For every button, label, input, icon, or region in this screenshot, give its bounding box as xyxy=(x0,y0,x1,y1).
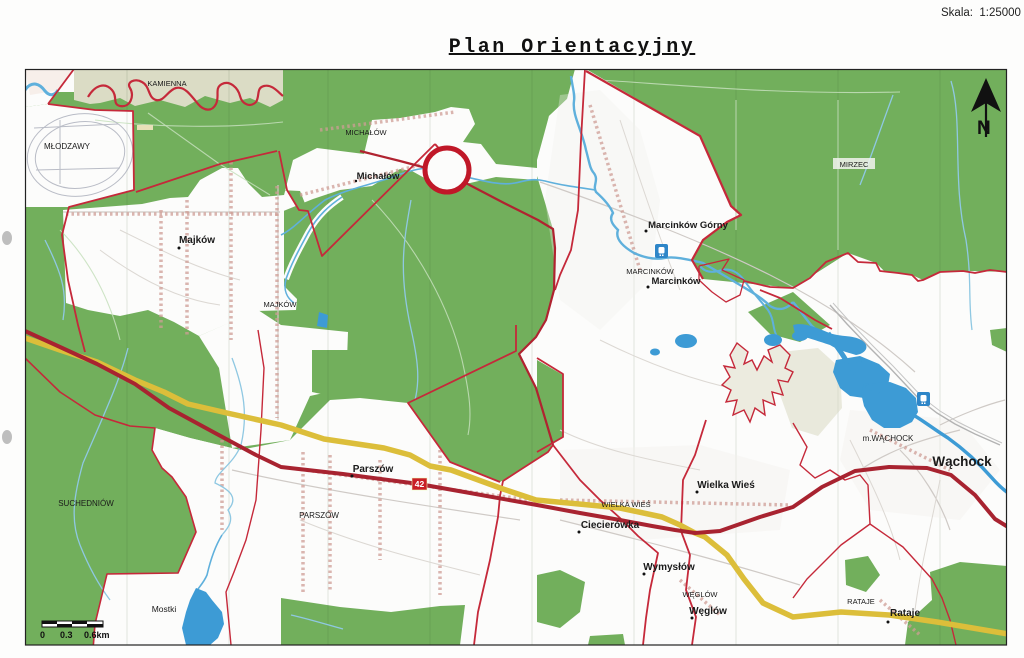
svg-text:N: N xyxy=(977,118,991,139)
svg-text:Majków: Majków xyxy=(179,235,215,246)
svg-text:Węglów: Węglów xyxy=(689,606,727,617)
svg-text:42: 42 xyxy=(415,479,425,489)
svg-text:Wymysłów: Wymysłów xyxy=(643,562,695,573)
svg-text:Marcinków: Marcinków xyxy=(651,276,701,287)
svg-text:PARSZÓW: PARSZÓW xyxy=(299,511,339,520)
svg-text:MARCINKÓW: MARCINKÓW xyxy=(626,267,674,276)
svg-text:KAMIENNA: KAMIENNA xyxy=(147,79,186,88)
svg-text:Marcinków Górny: Marcinków Górny xyxy=(648,220,728,231)
svg-text:MIRZEC: MIRZEC xyxy=(840,160,869,169)
svg-text:Mostki: Mostki xyxy=(152,604,177,614)
svg-text:Rataje: Rataje xyxy=(890,608,920,619)
svg-text:0: 0 xyxy=(40,630,45,640)
svg-text:WIELKA WIEŚ: WIELKA WIEŚ xyxy=(601,500,650,509)
svg-text:Wąchock: Wąchock xyxy=(932,454,992,469)
svg-text:0.6km: 0.6km xyxy=(84,630,110,640)
svg-text:SUCHEDNIÓW: SUCHEDNIÓW xyxy=(58,499,114,508)
svg-text:Parszów: Parszów xyxy=(353,464,394,475)
svg-text:Ciecierówka: Ciecierówka xyxy=(581,520,640,531)
svg-text:Skala: 1:25000: Skala: 1:25000 xyxy=(941,7,1021,19)
svg-text:MŁODZAWY: MŁODZAWY xyxy=(44,142,91,151)
svg-text:Wielka Wieś: Wielka Wieś xyxy=(697,480,755,491)
svg-text:0.3: 0.3 xyxy=(60,630,73,640)
svg-text:m.WĄCHOCK: m.WĄCHOCK xyxy=(863,434,914,443)
svg-text:Michałów: Michałów xyxy=(357,171,400,182)
svg-text:Plan Orientacyjny: Plan Orientacyjny xyxy=(449,36,696,59)
svg-text:RATAJE: RATAJE xyxy=(847,597,875,606)
svg-text:WĘGLÓW: WĘGLÓW xyxy=(683,590,719,599)
svg-text:MAJKÓW: MAJKÓW xyxy=(264,300,298,309)
svg-text:MICHAŁÓW: MICHAŁÓW xyxy=(345,128,387,137)
